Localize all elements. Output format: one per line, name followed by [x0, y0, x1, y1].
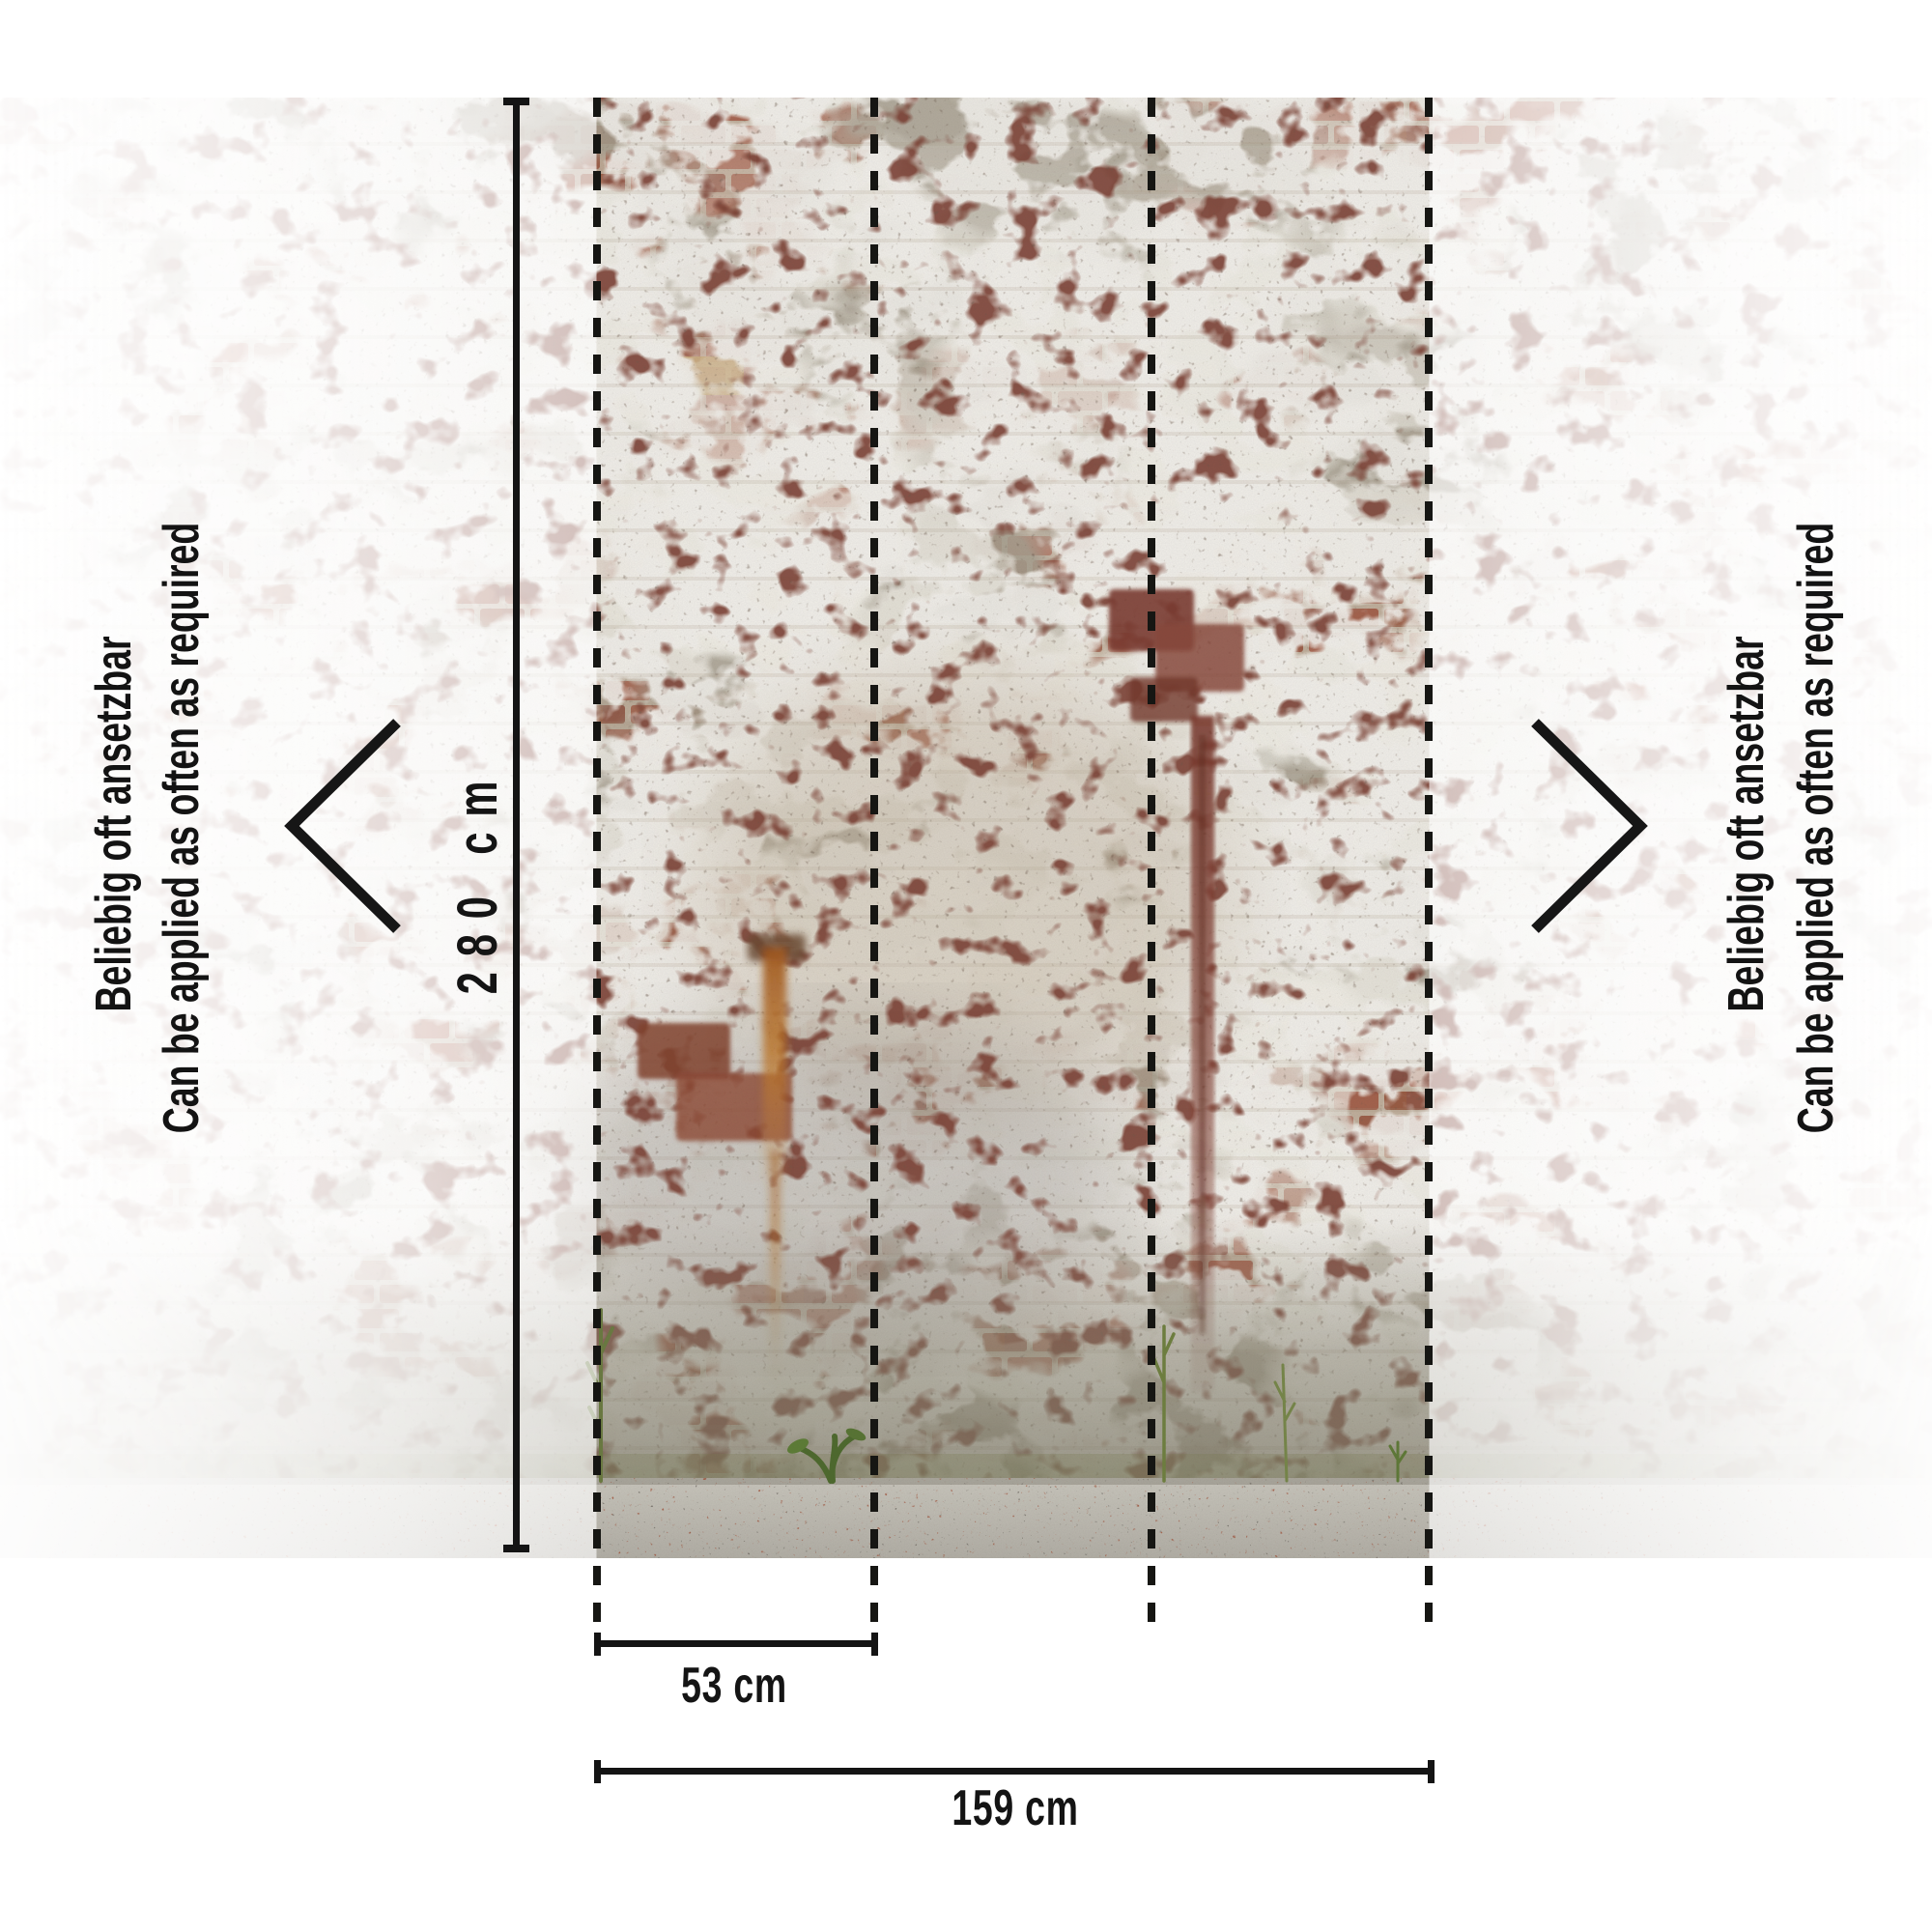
panel-width-cap-left — [594, 1633, 601, 1656]
height-dimension-line — [513, 98, 520, 1552]
total-width-cap-right — [1428, 1760, 1435, 1783]
height-dimension-cap-top — [503, 98, 529, 105]
wall-photo-texture — [0, 98, 1932, 1558]
product-diagram: 280 cm 53 cm 159 cm Beliebig oft ansetzb… — [0, 0, 1932, 1932]
total-width-cap-left — [594, 1760, 601, 1783]
panel-width-cap-right — [871, 1633, 878, 1656]
side-note-left-german: Beliebig oft ansetzbar — [89, 636, 139, 1011]
total-width-dimension-line — [597, 1768, 1432, 1775]
side-note-left-english: Can be applied as often as required — [156, 523, 207, 1133]
panel-width-dimension-line — [597, 1640, 874, 1647]
side-note-right-german: Beliebig oft ansetzbar — [1721, 636, 1772, 1011]
panel-seam-line-1 — [593, 98, 601, 1623]
height-dimension-label: 280 cm — [450, 766, 506, 995]
total-width-dimension-label: 159 cm — [952, 1783, 1078, 1833]
panel-seam-line-2 — [870, 98, 878, 1623]
panel-width-dimension-label: 53 cm — [681, 1661, 787, 1711]
height-dimension-cap-bottom — [503, 1545, 529, 1552]
panel-seam-line-4 — [1425, 98, 1433, 1623]
side-note-right-english: Can be applied as often as required — [1791, 523, 1841, 1133]
panel-seam-line-3 — [1148, 98, 1155, 1623]
